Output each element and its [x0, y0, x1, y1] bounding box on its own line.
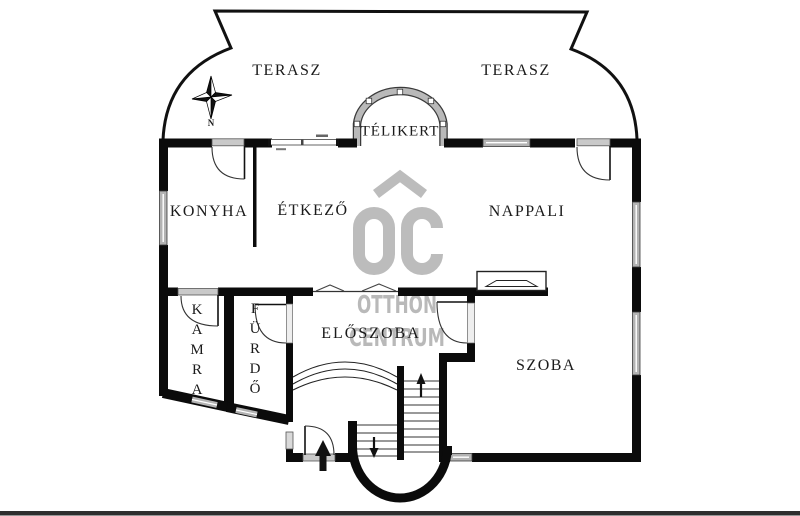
room-label-konyha: KONYHA [170, 203, 248, 221]
room-label-kamra: K A M R A [190, 300, 203, 400]
room-label-terasz-left: TERASZ [252, 62, 321, 80]
entrance-arrow-icon [315, 440, 331, 471]
compass-icon [192, 76, 232, 119]
room-label-szoba: SZOBA [516, 357, 576, 375]
room-label-nappali: NAPPALI [489, 203, 566, 221]
terrace-outline [163, 11, 637, 140]
fireplace [477, 272, 546, 291]
room-label-terasz-right: TERASZ [481, 62, 550, 80]
room-label-telikert: TÉLIKERT [361, 123, 440, 140]
room-label-eloszoba: ELŐSZOBA [321, 325, 421, 343]
bottom-edge-bar [0, 511, 800, 516]
compass-north-label: N [208, 118, 215, 128]
arch-lines [293, 362, 397, 390]
dimension-dash [276, 148, 286, 150]
dimension-dash [316, 135, 328, 138]
floorplan-drawing: OTTHON CENTRUM [0, 0, 800, 516]
room-label-etkezo: ÉTKEZŐ [277, 202, 348, 220]
floor-plan: OTTHON CENTRUM [0, 0, 800, 516]
room-label-furdo: F Ü R D Ő [250, 299, 261, 399]
